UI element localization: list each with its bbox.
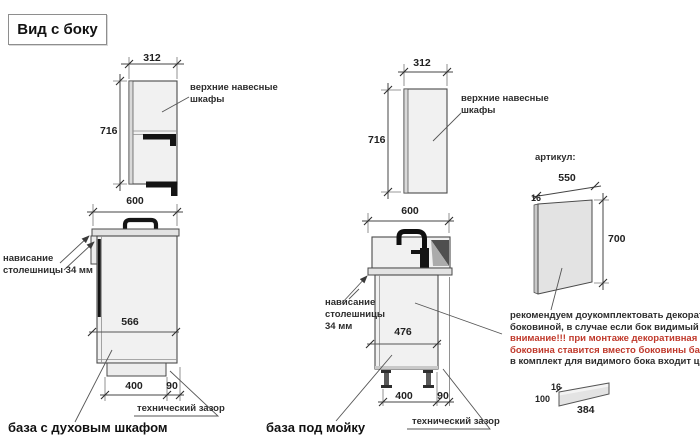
label-line: 34 мм — [325, 321, 385, 333]
dim-gap-width-left: 90 — [166, 380, 178, 392]
dim-wall-width-mid: 312 — [413, 57, 431, 69]
overhang-label-left: нависание столешницы 34 мм — [3, 253, 93, 277]
tech-gap-label-left: технический зазор — [137, 403, 225, 415]
recommendation-note: рекомендуем доукомплектовать декоративно… — [510, 310, 700, 368]
note-line: в комплект для видимого бока входит цоко… — [510, 356, 700, 368]
wall-cabinets-label-mid: верхние навесные шкафы — [461, 93, 549, 117]
plinth-panel-drawing — [556, 383, 609, 406]
countertop — [92, 229, 179, 236]
kitchen-side-view-drawing: Вид с боку 312 716 верхние навесные шкаф… — [0, 0, 700, 438]
label-line: шкафы — [461, 105, 549, 117]
dim-panel-thickness: 16 — [531, 193, 541, 203]
technical-linework — [0, 0, 700, 438]
dim-panel-height: 700 — [608, 233, 626, 245]
dim-plinth-thickness: 16 — [551, 382, 561, 392]
artikul-label: артикул: — [535, 152, 576, 164]
left-wall-cabinet-drawing — [113, 57, 189, 196]
side-panel-face — [538, 200, 592, 294]
tech-gap-label-mid: технический зазор — [412, 416, 500, 428]
dim-plinth-width-mid: 400 — [395, 390, 413, 402]
dim-base-width-mid: 600 — [401, 205, 419, 217]
label-line: верхние навесные — [461, 93, 549, 105]
plinth — [107, 363, 166, 376]
dim-plinth-height: 100 — [535, 394, 550, 404]
adjustable-legs-icon — [381, 370, 434, 388]
note-warning-line: внимание!!! при монтаже декоративная — [510, 333, 700, 345]
dim-gap-width-mid: 90 — [437, 390, 449, 402]
label-line: верхние навесные — [190, 82, 278, 94]
door-handle-icon — [146, 182, 178, 197]
view-title-box: Вид с боку — [8, 14, 107, 45]
dim-oven-depth: 566 — [121, 316, 139, 328]
dim-plinth-length: 384 — [577, 404, 595, 416]
wall-cabinet-body — [129, 81, 177, 184]
note-line: боковиной, в случае если бок видимый — [510, 322, 700, 334]
page-title: Вид с боку — [17, 21, 98, 38]
dim-wall-height-left: 716 — [100, 125, 118, 137]
dim-wall-height-mid: 716 — [368, 134, 386, 146]
wall-cabinet-body — [404, 89, 447, 193]
oven-door-gap — [98, 239, 101, 317]
dim-wall-width-left: 312 — [143, 52, 161, 64]
oven-base-caption: база с духовым шкафом — [8, 420, 168, 435]
countertop — [368, 268, 452, 275]
oven-handle-icon — [125, 220, 156, 229]
label-line: нависание — [3, 253, 93, 265]
note-warning-line: боковина ставится вместо боковины базы л… — [510, 345, 700, 357]
decorative-side-panel-drawing — [532, 182, 609, 310]
dim-panel-width: 550 — [558, 172, 576, 184]
note-line: рекомендуем доукомплектовать декоративно… — [510, 310, 700, 322]
label-line: столешницы — [325, 309, 385, 321]
label-line: нависание — [325, 297, 385, 309]
middle-wall-cabinet-drawing — [381, 64, 461, 199]
sink-base-caption: база под мойку — [266, 420, 365, 435]
overhang-label-mid: нависание столешницы 34 мм — [325, 297, 385, 333]
dim-sink-depth: 476 — [394, 326, 412, 338]
label-line: шкафы — [190, 94, 278, 106]
dim-base-width-left: 600 — [126, 195, 144, 207]
oven-cabinet-body — [97, 236, 177, 363]
label-line: столешницы 34 мм — [3, 265, 93, 277]
dim-plinth-width-left: 400 — [125, 380, 143, 392]
wall-cabinets-label-left: верхние навесные шкафы — [190, 82, 278, 106]
